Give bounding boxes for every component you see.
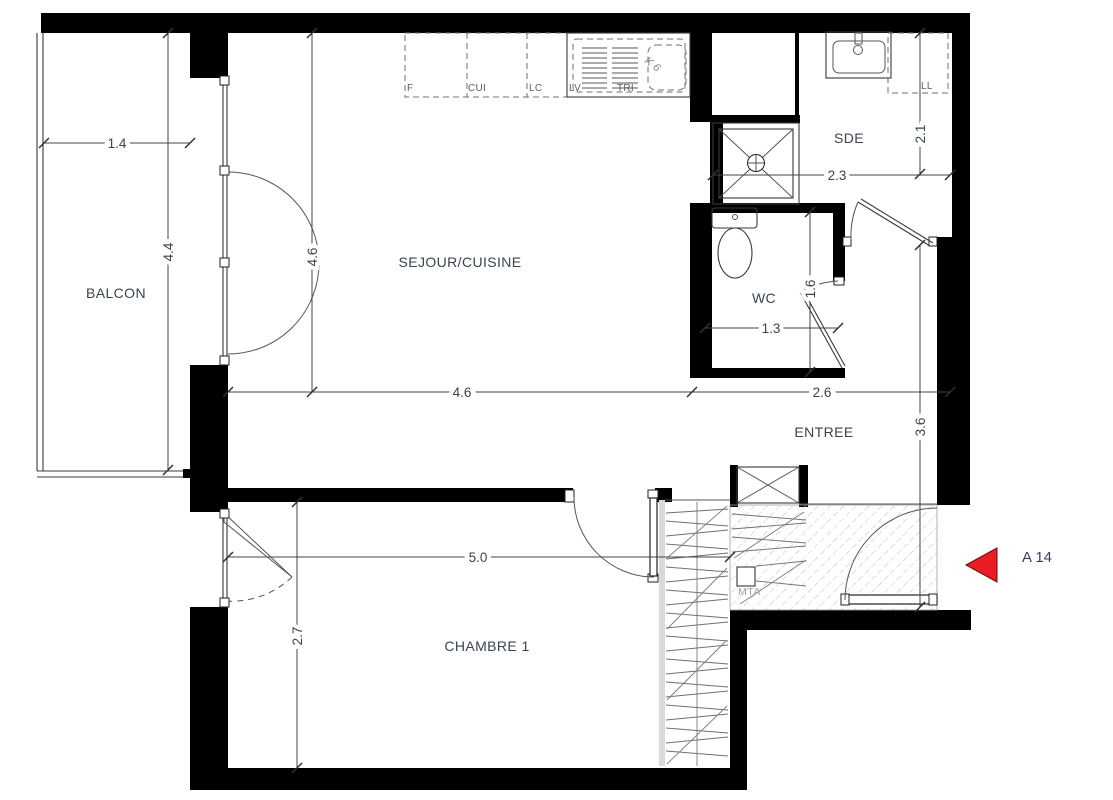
bedroom-casement-arc: [225, 577, 292, 601]
dim-living-width: 4.6: [453, 385, 472, 400]
entrance-door-leaf: [845, 595, 937, 604]
apartment-number: A 14: [1022, 549, 1052, 566]
wall-living-bedroom: [213, 488, 573, 502]
appliance-label-washer: LL: [921, 81, 933, 92]
entrance-door-block: [929, 594, 937, 605]
stairwell: [659, 500, 730, 766]
wall-duct-thin-right: [795, 33, 799, 122]
dim-balcony-depth: 4.4: [161, 242, 176, 261]
entry-area: ENTREE MTA: [659, 424, 937, 766]
wall-shower-left: [710, 122, 723, 205]
dim-bedroom-width: 5.0: [469, 550, 488, 565]
wc-room: WC: [712, 208, 845, 368]
wall-top: [41, 13, 970, 33]
appliance-label-cooker2: CUI: [468, 83, 486, 94]
wall-left-upper: [190, 13, 228, 78]
wall-duct-cap-right: [799, 465, 808, 507]
room-label-wc: WC: [752, 290, 776, 306]
washbasin-outline: [826, 32, 891, 78]
glazing-block: [220, 258, 229, 267]
appliance-label-tri: TRI: [617, 83, 634, 94]
dimension-lines: [44, 33, 950, 768]
shaft-label-mta: MTA: [738, 586, 761, 598]
bedroom-door-leaf: [650, 498, 657, 576]
room-label-bedroom: CHAMBRE 1: [444, 638, 529, 654]
balcony-railing-end: [183, 469, 190, 478]
washbasin-tap-knob: [854, 46, 863, 55]
wall-right-mid: [937, 237, 970, 505]
entrance-marker-icon: [966, 548, 997, 582]
dim-entry-width: 2.6: [813, 385, 832, 400]
wall-left-lower: [190, 607, 228, 790]
toilet-bowl: [718, 228, 752, 278]
wall-stair-right: [730, 610, 747, 790]
bedroom-door-jamb: [565, 490, 574, 502]
dimension-ticks: [39, 28, 955, 773]
landing-notch: [737, 567, 755, 586]
wall-kitchen-sde-pier: [690, 13, 712, 122]
wall-shower-top: [710, 115, 800, 123]
glazing-block: [220, 356, 229, 365]
wall-bottom: [190, 768, 747, 790]
toilet-button: [733, 215, 738, 220]
glazing-block: [220, 76, 229, 85]
living-glazing: [223, 78, 227, 365]
dim-wc-height: 1.6: [803, 280, 818, 299]
sde-door-leaf: [858, 199, 933, 246]
glazing-block: [220, 166, 229, 175]
room-label-sde: SDE: [834, 130, 864, 146]
room-label-entry: ENTREE: [794, 424, 853, 440]
appliance-label-lc: LC: [529, 83, 542, 94]
glazing-block: [220, 598, 229, 607]
floor-plan-svg: BALCON F CUI LC LV TRI K 6: [0, 0, 1113, 800]
bedroom-door-arc: [574, 497, 654, 577]
washer-box: [888, 33, 948, 93]
sde-door-arc: [851, 202, 858, 239]
landing-hatch: [730, 505, 937, 610]
dim-sde-width: 2.3: [828, 168, 847, 183]
room-label-living: SEJOUR/CUISINE: [398, 254, 521, 270]
dim-balcony-width: 1.4: [108, 136, 127, 151]
wall-right-upper: [952, 13, 970, 237]
appliance-label-fridge: F: [407, 83, 413, 94]
wall-wc-left: [690, 205, 712, 378]
duct-diagonals: [737, 467, 799, 503]
appliance-label-dishwasher: LV: [569, 83, 581, 94]
dim-living-height: 4.6: [305, 248, 320, 267]
dimensions: 1.4 4.4 4.6 4.6 2.6 2.1 2.3 1.6 1.3 3.6 …: [39, 28, 955, 773]
sde-door-jamb: [843, 237, 851, 246]
floor-plan-page: BALCON F CUI LC LV TRI K 6: [0, 0, 1113, 800]
handwritten-note: K 6: [642, 55, 663, 75]
glazing-block: [220, 509, 229, 518]
windows: [220, 76, 319, 607]
bedroom-door-block: [648, 490, 658, 498]
washbasin-tap: [855, 33, 862, 44]
dim-bedroom-height: 2.7: [290, 627, 305, 646]
bedroom-casement-leaf: [224, 513, 292, 577]
bedroom: CHAMBRE 1: [444, 490, 658, 654]
wall-wc-bottom: [690, 368, 845, 378]
dim-sde-height: 2.1: [913, 125, 928, 144]
wc-door-leaf: [800, 290, 845, 368]
stair-edge: [659, 500, 665, 766]
wall-entry-bottom: [730, 610, 971, 630]
dim-entry-height: 3.6: [913, 418, 928, 437]
room-label-balcony: BALCON: [86, 285, 146, 301]
dim-wc-width: 1.3: [762, 321, 781, 336]
walls: [41, 13, 971, 790]
kitchen-counter: F CUI LC LV TRI K 6: [405, 33, 690, 97]
apartment-marker: A 14: [966, 548, 1052, 582]
